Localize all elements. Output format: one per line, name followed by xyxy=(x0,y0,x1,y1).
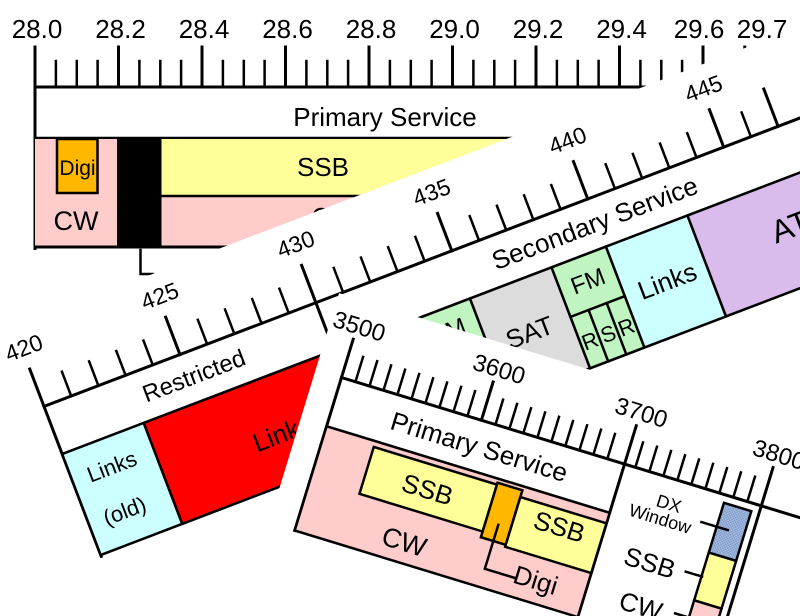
svg-text:28.8: 28.8 xyxy=(346,14,397,44)
svg-text:28.4: 28.4 xyxy=(179,14,230,44)
svg-text:29.6: 29.6 xyxy=(674,14,725,44)
svg-text:29.4: 29.4 xyxy=(596,14,647,44)
svg-text:29.2: 29.2 xyxy=(513,14,564,44)
svg-text:29.7: 29.7 xyxy=(737,14,788,44)
svg-text:CW: CW xyxy=(54,206,99,236)
svg-text:Digi: Digi xyxy=(59,157,95,180)
svg-text:Primary Service: Primary Service xyxy=(293,102,476,132)
svg-text:28.2: 28.2 xyxy=(95,14,146,44)
svg-text:29.0: 29.0 xyxy=(429,14,480,44)
svg-text:28.0: 28.0 xyxy=(12,14,63,44)
svg-text:28.6: 28.6 xyxy=(262,14,313,44)
svg-text:SSB: SSB xyxy=(297,152,349,182)
